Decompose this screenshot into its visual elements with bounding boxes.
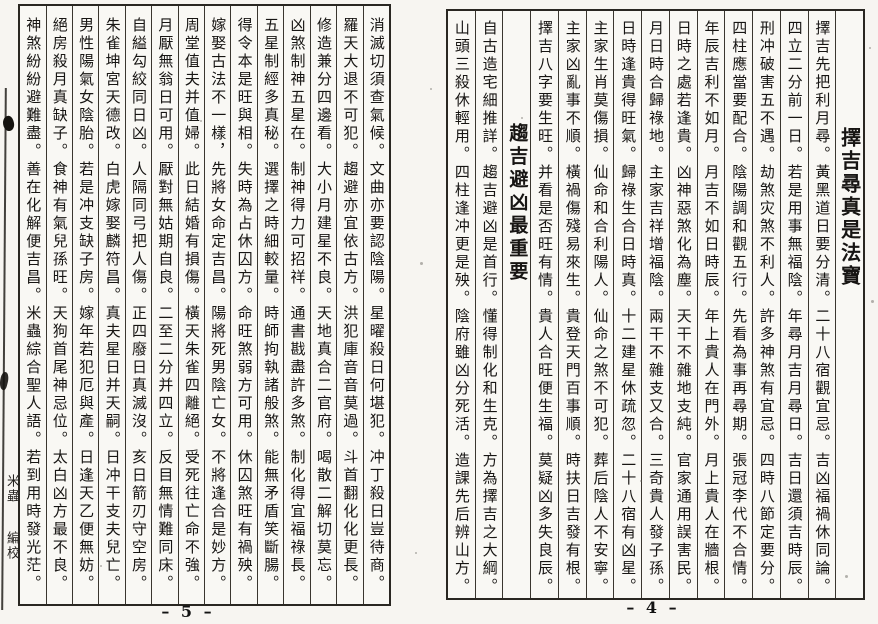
scan-speckle [100, 565, 102, 567]
text-column: 男性陽氣女陰胎。若是冲支缺子房。嫁年若犯厄與產。日逢天乙便無妨。 [72, 6, 98, 604]
column-text: 擇吉先把利月尋。黃黑道日要分清。二十八宿觀宜忌。吉凶福禍休同論。 [814, 11, 829, 598]
column-text: 自縊勾絞同日凶。人隔同弓把人傷。正四廢日真滅沒。亥日箭刃守空房。 [131, 6, 146, 604]
text-column: 月日時合歸祿地。主家吉祥增福陰。兩干不雜支又合。三奇貴人發子孫。 [641, 11, 669, 598]
text-column: 四柱應當要配合。陰陽調和觀五行。先看為事再尋期。張冠李代不合情。 [724, 11, 752, 598]
scan-speckle [640, 480, 642, 482]
ink-blot-bottom [0, 371, 10, 390]
column-text: 男性陽氣女陰胎。若是冲支缺子房。嫁年若犯厄與產。日逢天乙便無妨。 [78, 6, 93, 604]
margin-colophon: 米蟲 編校 [2, 474, 21, 561]
column-text: 朱雀坤宮天德改。白虎嫁娶麟符昌。真夫星日并天嗣。日冲干支夫兒亡。 [105, 6, 120, 604]
text-column: 刑冲破害五不遇。劫煞灾煞不利人。許多神煞有宜忌。四時八節定要分。 [752, 11, 780, 598]
text-column: 消滅切須查氣候。文曲亦要認陰陽。星曜殺日何堪犯。冲丁殺日豈待商。 [363, 6, 389, 604]
column-text: 山頭三殺休輕用。四柱逢冲更是殃。陰府雖凶分死活。造課先后辨山方。 [454, 11, 469, 598]
column-text: 擇吉尋真是法寶 [840, 11, 860, 598]
scan-speckle [415, 552, 417, 554]
scan-speckle [420, 262, 423, 265]
text-column: 羅天大退不可犯。趨避亦宜依古方。洪犯庫音音莫過。斗首翻化化更長。 [336, 6, 362, 604]
scan-speckle [869, 47, 871, 49]
column-text: 趨吉避凶最重要 [507, 11, 526, 598]
column-text: 月厭無翁日可用。厭對無姑期自良。二至二分并四立。反目無情難同床。 [157, 6, 172, 604]
column-text: 月日時合歸祿地。主家吉祥增福陰。兩干不雜支又合。三奇貴人發子孫。 [648, 11, 663, 598]
text-column: 自縊勾絞同日凶。人隔同弓把人傷。正四廢日真滅沒。亥日箭刃守空房。 [125, 6, 151, 604]
column-text: 四柱應當要配合。陰陽調和觀五行。先看為事再尋期。張冠李代不合情。 [731, 11, 746, 598]
text-column: 主家生肖莫傷損。仙命和合利陽人。仙命之煞不可犯。葬后陰人不安寧。 [586, 11, 614, 598]
text-column: 年辰吉利不如月。月吉不如日時辰。年上貴人在門外。月上貴人在牆根。 [697, 11, 725, 598]
text-column: 四立二分前一日。若是用事無福陰。年尋月吉月尋日。吉日還須吉時辰。 [780, 11, 808, 598]
column-text: 主家凶亂事不順。橫禍傷殘易來生。貴登天門百事順。時扶日吉發有根。 [565, 11, 580, 598]
column-text: 五星制經多真秘。選擇之時細較量。時師拘執諸般煞。能無矛盾笑斷腸。 [263, 6, 278, 604]
column-text: 消滅切須查氣候。文曲亦要認陰陽。星曜殺日何堪犯。冲丁殺日豈待商。 [369, 6, 384, 604]
text-column: 山頭三殺休輕用。四柱逢冲更是殃。陰府雖凶分死活。造課先后辨山方。 [448, 11, 475, 598]
text-column: 日時之處若逢貴。凶神惡煞化為塵。天干不雜地支純。官家通用誤害民。 [669, 11, 697, 598]
text-column: 周堂值夫并值婦。此日結婚有損傷。橫天朱雀四離絕。受死往亡命不強。 [178, 6, 204, 604]
scan-speckle [871, 300, 874, 303]
text-column: 擇吉先把利月尋。黃黑道日要分清。二十八宿觀宜忌。吉凶福禍休同論。 [808, 11, 836, 598]
text-column: 月厭無翁日可用。厭對無姑期自良。二至二分并四立。反目無情難同床。 [151, 6, 177, 604]
column-text: 得令本是旺與相。失時為占休囚方。命旺煞弱方可用。休囚煞旺有禍殃。 [237, 6, 252, 604]
text-column: 得令本是旺與相。失時為占休囚方。命旺煞弱方可用。休囚煞旺有禍殃。 [230, 6, 256, 604]
column-text: 自古造宅細推詳。趨吉避凶是首行。懂得制化和生克。方為擇吉之大綱。 [482, 11, 497, 598]
right-page: 擇吉尋真是法寶擇吉先把利月尋。黃黑道日要分清。二十八宿觀宜忌。吉凶福禍休同論。四… [446, 9, 865, 600]
left-page: 消滅切須查氣候。文曲亦要認陰陽。星曜殺日何堪犯。冲丁殺日豈待商。羅天大退不可犯。… [18, 4, 391, 606]
text-column: 日時逢貴得旺氣。歸祿生合日時真。十二建星休疏忽。二十八宿有凶星。 [613, 11, 641, 598]
scan-speckle [200, 120, 202, 122]
page-number-right: – 4 – [608, 598, 698, 617]
ink-blot-top [1, 115, 16, 133]
page-title-column: 擇吉尋真是法寶 [835, 11, 863, 598]
column-text: 絕房殺月真缺子。食神有氣兒孫旺。天狗首尾神忌位。太白凶方最不良。 [52, 6, 67, 604]
text-column: 嫁娶古法不一樣，先將女命定吉昌。陽將死男陰亡女。不將逢合是妙方。 [204, 6, 230, 604]
column-text: 凶煞制神五星在。制神得力可招祥。通書戡盡許多煞。制化得宜福祿長。 [290, 6, 305, 604]
column-text: 年辰吉利不如月。月吉不如日時辰。年上貴人在門外。月上貴人在牆根。 [703, 11, 718, 598]
column-text: 擇吉八字要生旺。并看是否旺有情。貴人合旺便生福。莫疑凶多失良辰。 [537, 11, 552, 598]
colophon-name: 米蟲 [4, 474, 19, 504]
column-text: 刑冲破害五不遇。劫煞灾煞不利人。許多神煞有宜忌。四時八節定要分。 [759, 11, 774, 598]
colophon-role: 編校 [2, 531, 21, 561]
text-column: 主家凶亂事不順。橫禍傷殘易來生。貴登天門百事順。時扶日吉發有根。 [558, 11, 586, 598]
section-header-column: 趨吉避凶最重要 [502, 11, 530, 598]
column-text: 周堂值夫并值婦。此日結婚有損傷。橫天朱雀四離絕。受死往亡命不強。 [184, 6, 199, 604]
column-text: 羅天大退不可犯。趨避亦宜依古方。洪犯庫音音莫過。斗首翻化化更長。 [342, 6, 357, 604]
book-scan-spread: 消滅切須查氣候。文曲亦要認陰陽。星曜殺日何堪犯。冲丁殺日豈待商。羅天大退不可犯。… [0, 0, 878, 624]
column-text: 四立二分前一日。若是用事無福陰。年尋月吉月尋日。吉日還須吉時辰。 [787, 11, 802, 598]
page-number-left: – 5 – [143, 602, 233, 621]
scan-speckle [521, 117, 523, 119]
text-column: 五星制經多真秘。選擇之時細較量。時師拘執諸般煞。能無矛盾笑斷腸。 [257, 6, 283, 604]
scan-speckle [430, 88, 432, 90]
scan-speckle [845, 575, 848, 578]
column-text: 日時逢貴得旺氣。歸祿生合日時真。十二建星休疏忽。二十八宿有凶星。 [620, 11, 635, 598]
text-column: 擇吉八字要生旺。并看是否旺有情。貴人合旺便生福。莫疑凶多失良辰。 [530, 11, 558, 598]
column-text: 嫁娶古法不一樣，先將女命定吉昌。陽將死男陰亡女。不將逢合是妙方。 [210, 6, 225, 604]
text-column: 朱雀坤宮天德改。白虎嫁娶麟符昌。真夫星日并天嗣。日冲干支夫兒亡。 [98, 6, 124, 604]
column-text: 日時之處若逢貴。凶神惡煞化為塵。天干不雜地支純。官家通用誤害民。 [676, 11, 691, 598]
text-column: 凶煞制神五星在。制神得力可招祥。通書戡盡許多煞。制化得宜福祿長。 [283, 6, 309, 604]
column-text: 神煞紛紛避難盡。善在化解便吉昌。米蟲綜合聖人語。若到用時發光茫。 [25, 6, 40, 604]
text-column: 絕房殺月真缺子。食神有氣兒孫旺。天狗首尾神忌位。太白凶方最不良。 [46, 6, 72, 604]
text-column: 神煞紛紛避難盡。善在化解便吉昌。米蟲綜合聖人語。若到用時發光茫。 [20, 6, 45, 604]
column-text: 主家生肖莫傷損。仙命和合利陽人。仙命之煞不可犯。葬后陰人不安寧。 [593, 11, 608, 598]
text-column: 修造兼分四邊看。大小月建星不良。天地真合二官府。喝散二解切莫忘。 [310, 6, 336, 604]
text-column: 自古造宅細推詳。趨吉避凶是首行。懂得制化和生克。方為擇吉之大綱。 [475, 11, 503, 598]
column-text: 修造兼分四邊看。大小月建星不良。天地真合二官府。喝散二解切莫忘。 [316, 6, 331, 604]
